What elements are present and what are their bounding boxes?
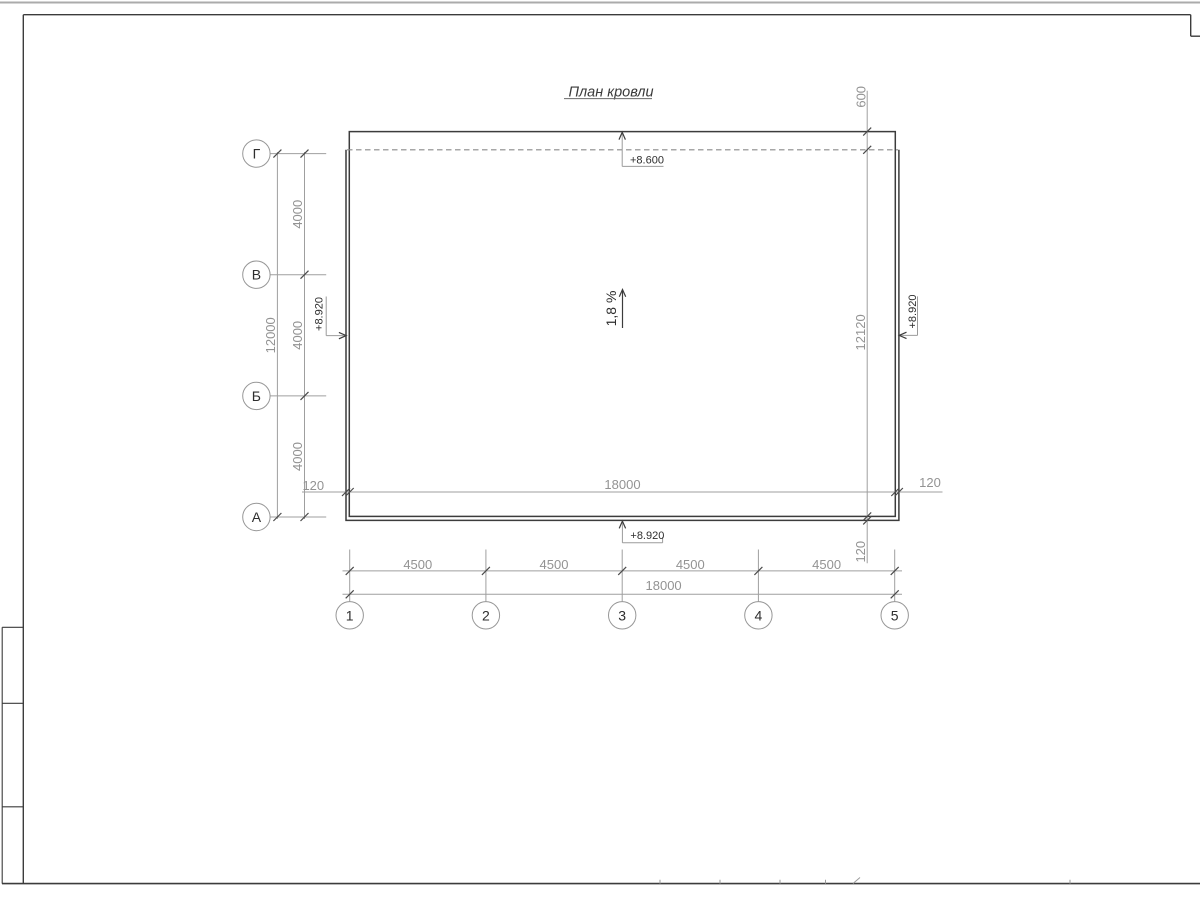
svg-text:12120: 12120 [853, 314, 868, 350]
svg-text:+8.920: +8.920 [630, 530, 664, 542]
svg-text:12000: 12000 [263, 317, 278, 353]
svg-text:Г: Г [253, 146, 261, 162]
svg-text:3: 3 [618, 607, 626, 623]
svg-text:+8.920: +8.920 [907, 295, 919, 329]
svg-text:4500: 4500 [540, 557, 569, 572]
svg-text:1,8 %: 1,8 % [603, 291, 619, 327]
svg-text:120: 120 [853, 541, 868, 563]
svg-text:+8.600: +8.600 [630, 154, 664, 166]
svg-text:18000: 18000 [604, 477, 640, 492]
svg-text:2: 2 [482, 607, 490, 623]
svg-text:4500: 4500 [676, 557, 705, 572]
svg-text:А: А [252, 509, 262, 525]
svg-text:120: 120 [302, 478, 324, 493]
svg-text:600: 600 [854, 86, 869, 108]
svg-text:5: 5 [891, 607, 899, 623]
svg-text:4500: 4500 [812, 557, 841, 572]
svg-text:1: 1 [346, 607, 354, 623]
svg-text:18000: 18000 [646, 578, 682, 593]
svg-text:120: 120 [919, 475, 941, 490]
svg-text:4000: 4000 [290, 442, 305, 471]
svg-text:+8.920: +8.920 [314, 297, 326, 331]
svg-text:В: В [252, 267, 261, 283]
svg-text:4: 4 [755, 607, 763, 623]
svg-text:Б: Б [252, 388, 261, 404]
svg-text:4500: 4500 [403, 557, 432, 572]
svg-text:4000: 4000 [290, 321, 305, 350]
svg-text:4000: 4000 [290, 200, 305, 229]
